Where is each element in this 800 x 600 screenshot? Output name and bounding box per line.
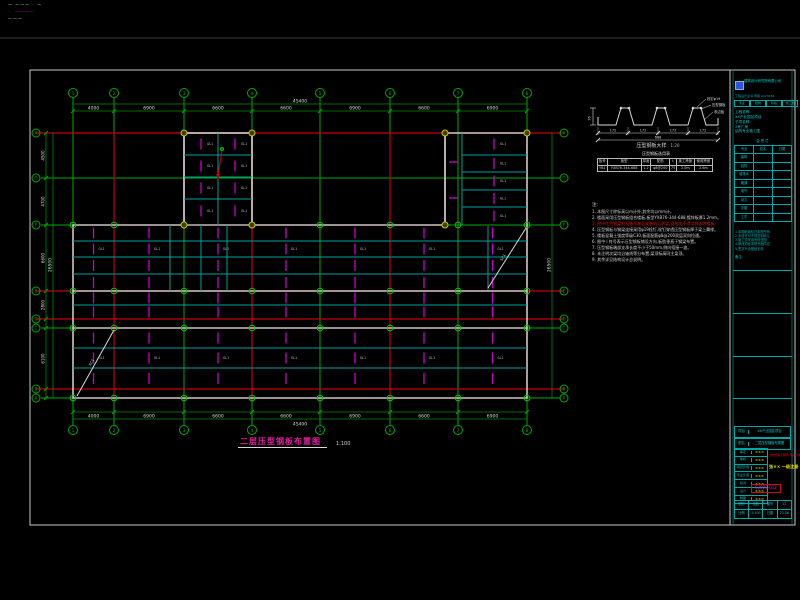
table-data-cell: YXB76-344-688: [607, 165, 641, 172]
dim-text: GL1: [500, 162, 506, 166]
table-header-cell: 使用跨度: [694, 158, 712, 165]
joint-node: [181, 130, 187, 136]
dim-text: C: [563, 326, 566, 331]
profile-vertex: [656, 107, 658, 109]
title-block: 建筑设计研究院有限公司 工程设计证书 甲级 A123456 专业结构阶段施工图 …: [733, 70, 792, 525]
sheet-info-cell: 12: [777, 501, 791, 510]
deck-table-grid: 板号板型厚度配筋t施工跨度使用跨度YB1YXB76-344-6881.2φ8@2…: [597, 158, 713, 173]
countersign-table: 会 签 栏 专业姓名日期建筑结构给排水暖通电气动力总图工艺: [734, 140, 792, 222]
table-header-cell: 板号: [598, 158, 608, 165]
dim-text: 6900: [143, 414, 155, 420]
countersign-cell: [773, 154, 792, 163]
countersign-title: 会 签 栏: [734, 140, 791, 144]
dim-text: D: [34, 317, 37, 322]
dim-text: GL1: [500, 214, 506, 218]
table-header-cell: 厚度: [641, 158, 651, 165]
project-name-rows: 项目XX产业园区项目图名二层压型钢板布置图: [734, 426, 791, 450]
brace: [77, 330, 114, 396]
dim-text: 6900: [487, 414, 499, 420]
dim-text: 6600: [418, 106, 430, 112]
dim-text: GL1: [497, 247, 503, 251]
divider: [733, 270, 792, 271]
signature-label: 审定: [735, 451, 752, 455]
dim-text: GL1: [497, 356, 503, 360]
deck-selection-table: 压型钢板选用表 板号板型厚度配筋t施工跨度使用跨度YB1YXB76-344-68…: [597, 152, 715, 172]
company-logo-icon: [735, 81, 744, 90]
note-item: 3. 图中红色钢梁为设备吊装后安装的后装梁,安装前不得浇筑该跨楼板。: [592, 221, 744, 226]
dim-text: 2: [113, 428, 116, 434]
leader: [701, 105, 711, 109]
dim-text: 6600: [212, 106, 224, 112]
countersign-cell: [754, 188, 773, 197]
countersign-cell: 结构: [735, 162, 754, 171]
general-notes: 注: 1. 本图尺寸除标高以m计外,其余均以mm计。2. 楼面采用压型钢板组合楼…: [592, 203, 744, 263]
dim-text: GL1: [154, 356, 160, 360]
dim-text: 45400: [293, 99, 307, 105]
deck-profile: [598, 108, 718, 125]
cad-sheet: 4000400069006900660066006600660069006900…: [0, 0, 800, 600]
brace: [488, 228, 526, 288]
divider: [733, 398, 792, 399]
drawing-scale: 1:100: [336, 442, 350, 448]
divider: [733, 313, 792, 314]
dim-text: C: [35, 326, 38, 331]
table-data-cell: 2.0m: [676, 165, 694, 172]
dim-text: F: [563, 223, 566, 228]
note-item: 4. 压型钢板与钢梁连接采用φ19栓钉,栓钉穿透压型钢板焊于梁上翼缘。: [592, 227, 744, 232]
dim-text: B: [35, 387, 38, 392]
dim-text: 26500: [48, 258, 54, 272]
registration-stamp-text: 注册结构工程师 执业印章: [769, 454, 791, 457]
plan-canvas: 4000400069006900660066006600660069006900…: [0, 0, 800, 600]
project-info-line: XX产业园区项目: [735, 115, 762, 120]
dim-text: GL1: [223, 247, 229, 251]
sheet-info-cell: 图号: [763, 501, 777, 510]
signature-label: 专业负责: [735, 474, 752, 478]
dim-text: 76: [588, 116, 592, 120]
joint-node: [442, 222, 448, 228]
deck-detail-caption: 压型钢板大样1:20: [598, 144, 718, 150]
corner-mark-3: ———: [8, 17, 23, 22]
signature-label: 审核: [735, 458, 752, 462]
note-item: 7. 压型钢板端部支承长度不小于50mm,侧向搭接一波。: [592, 245, 744, 250]
drawing-title: 二层压型钢板布置图: [238, 437, 327, 448]
table-data-cell: YB1: [598, 165, 608, 172]
dim-text: 6100: [41, 353, 46, 364]
dim-text: 8: [526, 428, 529, 434]
leader: [697, 99, 706, 107]
signature-value: ×××: [752, 458, 767, 462]
project-row-value: 二层压型钢板布置图: [749, 442, 790, 446]
table-header-cell: 施工跨度: [676, 158, 694, 165]
countersign-cell: [773, 205, 792, 214]
project-row-label: 图名: [735, 442, 749, 446]
dim-text: 4: [251, 91, 254, 97]
countersign-cell: 暖通: [735, 179, 754, 188]
countersign-row: 动力: [735, 196, 792, 205]
signature-row: 审核×××: [734, 457, 768, 465]
dim-text: 6600: [212, 414, 224, 420]
project-row-value: XX产业园区项目: [749, 430, 790, 434]
clause-line: 5.签字不全图纸无效: [735, 247, 770, 251]
joint-node: [524, 130, 530, 136]
countersign-cell: 工艺: [735, 213, 754, 222]
sheet-info-cell: 1:100: [749, 510, 763, 519]
note-item: 2. 楼面采用压型钢板组合楼板,板型YXB76-344-688,镀锌板厚1.2m…: [592, 215, 744, 220]
sheet-info-row: 比例1:100日期23.06: [735, 510, 792, 519]
discipline-header: 专业结构阶段施工图: [734, 100, 798, 107]
dim-text: 2800: [41, 299, 46, 310]
note-item: 5. 楼板混凝土强度等级C30,板面配筋φ8@200双层双向拉通。: [592, 233, 744, 238]
countersign-row: 电气: [735, 188, 792, 197]
discipline-cell: 阶段: [766, 100, 782, 107]
dim-text: GL1: [223, 356, 229, 360]
floor-outline: [73, 133, 527, 398]
dim-text: 1: [72, 428, 75, 434]
dim-text: GL1: [429, 356, 435, 360]
dim-text: GL1: [207, 142, 213, 146]
dim-text: 6600: [280, 106, 292, 112]
dim-text: GL1: [154, 247, 160, 251]
signature-row: 专业负责×××: [734, 472, 768, 480]
table-data-cell: 2.6m: [694, 165, 712, 172]
copyright-clauses: 1.本图纸版权归本院所有2.未经许可不得复制转让3.施工须采用有效蓝图4.修改须…: [735, 230, 770, 251]
detail-scale: 1:20: [671, 143, 680, 148]
table-data-row: YB1YXB76-344-6881.2φ8@200752.0m2.6m: [598, 165, 713, 172]
slope-arrow-origin: [221, 148, 224, 151]
sheet-info-cell: 图别: [735, 501, 749, 510]
notes-title: 注:: [592, 203, 744, 208]
note-item: 1. 本图尺寸除标高以m计外,其余均以mm计。: [592, 209, 744, 214]
dim-text: 3: [183, 428, 186, 434]
project-row: 项目XX产业园区项目: [734, 426, 791, 438]
dim-text: GL1: [360, 356, 366, 360]
table-header-row: 板号板型厚度配筋t施工跨度使用跨度: [598, 158, 713, 165]
signature-stamp: 张×× 一级注册: [769, 464, 791, 469]
dim-text: A: [563, 396, 566, 401]
profile-vertex: [628, 107, 630, 109]
dim-text: B: [563, 387, 566, 392]
countersign-row: 建筑: [735, 154, 792, 163]
dim-text: GL1: [291, 356, 297, 360]
countersign-cell: [754, 205, 773, 214]
dim-text: D: [562, 317, 565, 322]
dim-text: 8: [526, 91, 529, 97]
joint-node: [442, 130, 448, 136]
countersign-cell: [773, 196, 792, 205]
table-header-cell: 板型: [607, 158, 641, 165]
dim-text: GL1: [241, 164, 247, 168]
dim-text: GL1: [241, 142, 247, 146]
dim-text: 6900: [487, 106, 499, 112]
dim-text: 7: [457, 91, 460, 97]
profile-vertex: [664, 107, 666, 109]
dim-text: 3: [183, 91, 186, 97]
leader: [704, 112, 713, 120]
signature-row: 项目负责×××: [734, 465, 768, 473]
dim-text: 6900: [349, 106, 361, 112]
sheet-info-cell: 结施: [749, 501, 763, 510]
note-item: 8. 未注明次梁均沿轴线等分布置,梁顶标高同主梁顶。: [592, 251, 744, 256]
dim-text: 172: [610, 129, 616, 133]
joint-node: [249, 222, 255, 228]
countersign-cell: [773, 188, 792, 197]
deck-table-title: 压型钢板选用表: [597, 152, 715, 157]
dim-text: 172: [700, 129, 706, 133]
dim-text: 收边板: [714, 109, 725, 114]
countersign-cell: [754, 171, 773, 180]
countersign-cell: 建筑: [735, 154, 754, 163]
discipline-cell: 结构: [750, 100, 766, 107]
dim-text: GL1: [207, 186, 213, 190]
dim-text: 2: [113, 91, 116, 97]
countersign-cell: [754, 196, 773, 205]
dim-text: 5: [319, 91, 322, 97]
countersign-cell: 专业: [735, 145, 754, 154]
dim-text: G: [34, 176, 37, 181]
dim-text: 压型钢板: [712, 102, 726, 107]
dim-text: E: [563, 289, 566, 294]
note-item: 6. 图中 I 符号表示压型钢板铺设方向,板肋垂直于钢梁布置。: [592, 239, 744, 244]
dim-text: 6900: [349, 414, 361, 420]
countersign-cell: 姓名: [754, 145, 773, 154]
company-name: 建筑设计研究院有限公司: [744, 80, 791, 84]
sheet-border: [30, 70, 795, 525]
remark-label: 备注:: [735, 256, 743, 260]
signature-value: ×××: [752, 450, 767, 454]
dim-text: GL1: [207, 164, 213, 168]
document-number: S2023-012: [751, 484, 781, 493]
table-data-cell: 1.2: [641, 165, 651, 172]
countersign-cell: 给排水: [735, 171, 754, 180]
countersign-cell: 日期: [773, 145, 792, 154]
countersign-cell: 总图: [735, 205, 754, 214]
countersign-row: 专业姓名日期: [735, 145, 792, 154]
dim-text: 4700: [41, 196, 46, 207]
dim-text: GL1: [360, 247, 366, 251]
dim-text: G: [562, 176, 565, 181]
table-header-cell: 配筋: [651, 158, 670, 165]
dim-text: GL1: [429, 247, 435, 251]
signature-label: 校对: [735, 482, 752, 486]
profile-vertex: [620, 107, 622, 109]
dim-text: 6600: [280, 414, 292, 420]
countersign-cell: [773, 213, 792, 222]
table-data-cell: φ8@200: [651, 165, 670, 172]
dim-text: 172: [670, 129, 676, 133]
divider: [733, 356, 792, 357]
dim-text: 栓钉φ19: [707, 96, 720, 101]
dim-text: GL1: [500, 142, 506, 146]
profile-vertex: [692, 107, 694, 109]
dim-text: 6600: [418, 414, 430, 420]
dim-text: 26500: [547, 258, 553, 272]
dim-text: GL1: [207, 209, 213, 213]
project-info: 工程名称:XX产业园区项目子项名称:2号厂房结构专业施工图: [735, 110, 762, 134]
signature-value: ×××: [752, 466, 767, 470]
dim-text: GL1: [241, 209, 247, 213]
drawing-title-block: 二层压型钢板布置图 1:100: [238, 437, 350, 448]
dim-text: 45400: [293, 422, 307, 428]
dim-text: 6: [389, 91, 392, 97]
countersign-cell: [773, 179, 792, 188]
dim-text: 4000: [88, 414, 100, 420]
dim-text: 4500: [41, 150, 46, 161]
dim-text: 7: [457, 428, 460, 434]
project-row-label: 项目: [735, 430, 749, 434]
dim-text: 172: [640, 129, 646, 133]
sheet-info-cell: 比例: [735, 510, 749, 519]
dim-text: 5: [319, 428, 322, 434]
countersign-row: 给排水: [735, 171, 792, 180]
corner-mark-2: ·· ————: [8, 10, 35, 15]
countersign-cell: [754, 213, 773, 222]
sheet-info-cell: 日期: [763, 510, 777, 519]
dim-text: 688: [655, 136, 663, 140]
signature-label: 项目负责: [735, 466, 752, 470]
joint-node: [249, 130, 255, 136]
countersign-cell: [754, 162, 773, 171]
dim-text: GL1: [500, 179, 506, 183]
project-info-line: 结构专业施工图: [735, 129, 762, 134]
signature-rows: 审定×××审核×××项目负责×××专业负责×××校对×××设计×××制图×××: [734, 448, 768, 504]
dim-text: H: [562, 131, 565, 136]
corner-mark-1: — ——— · —: [8, 3, 42, 8]
dim-text: 4: [251, 428, 254, 434]
note-item: 9. 其余详见结构设计总说明。: [592, 257, 744, 262]
joint-node: [181, 222, 187, 228]
countersign-cell: 电气: [735, 188, 754, 197]
dim-text: GL1: [291, 247, 297, 251]
dim-text: H: [34, 131, 37, 136]
countersign-row: 总图: [735, 205, 792, 214]
discipline-cell: 施工图: [782, 100, 798, 107]
sheet-info-cell: 23.06: [777, 510, 791, 519]
discipline-cell: 专业: [734, 100, 750, 107]
dim-text: GL1: [241, 186, 247, 190]
countersign-cell: 动力: [735, 196, 754, 205]
dim-text: GL1: [500, 197, 506, 201]
dim-text: 1: [72, 91, 75, 97]
dim-text: 6900: [143, 106, 155, 112]
countersign-cell: [773, 162, 792, 171]
countersign-row: 结构: [735, 162, 792, 171]
dim-text: 6: [389, 428, 392, 434]
countersign-row: 暖通: [735, 179, 792, 188]
signature-value: ×××: [752, 474, 767, 478]
dim-text: A: [35, 396, 38, 401]
table-data-cell: 75: [670, 165, 677, 172]
table-header-cell: t: [670, 158, 677, 165]
signature-row: 审定×××: [734, 448, 768, 457]
countersign-cell: [754, 154, 773, 163]
sheet-info-row: 图别结施图号12: [735, 501, 792, 510]
dim-text: GL1: [98, 247, 104, 251]
dim-text: 4000: [88, 106, 100, 112]
detail-caption-text: 压型钢板大样: [637, 143, 667, 149]
slope-arrow: [218, 150, 222, 176]
countersign-row: 工艺: [735, 213, 792, 222]
countersign-cell: [773, 171, 792, 180]
dim-text: 6600: [41, 252, 46, 263]
certificate-line: 工程设计证书 甲级 A123456: [735, 95, 774, 98]
signature-label: 设计: [735, 490, 752, 494]
sheet-number-table: 图别结施图号12比例1:100日期23.06: [734, 500, 792, 519]
dim-text: F: [35, 223, 38, 228]
countersign-cell: [754, 179, 773, 188]
